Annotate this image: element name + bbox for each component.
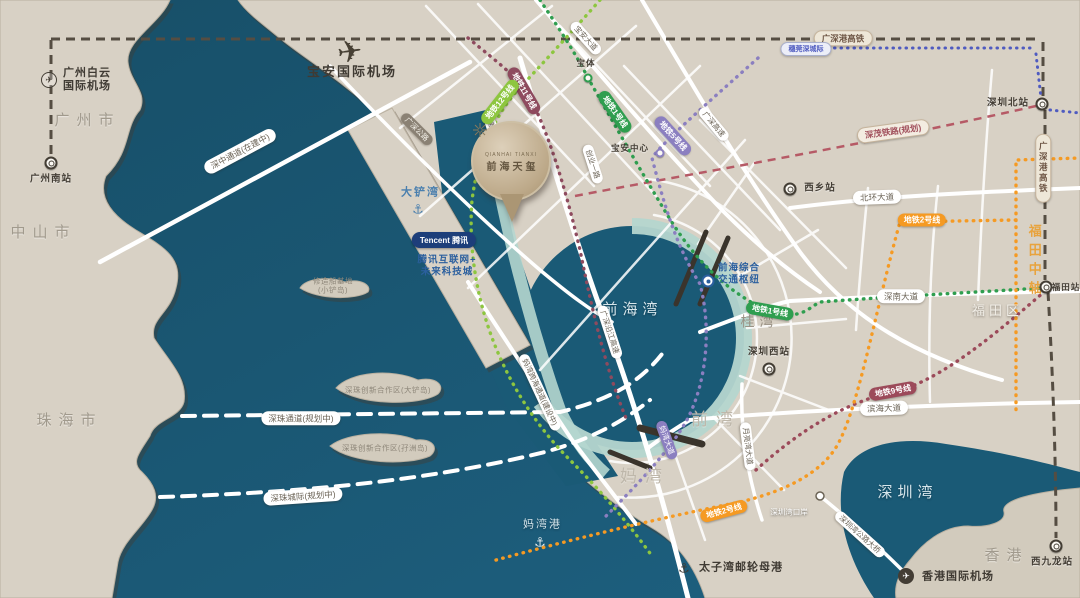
water-label-dachan-bay: 大铲湾 — [396, 186, 440, 199]
road-pill-shenzhu-corridor: 深珠通道(规划中) — [261, 411, 340, 425]
road-pill-beihuan-avenue: 北环大道 — [853, 189, 901, 204]
station-icon-xixiang — [784, 183, 797, 196]
region-label-guangzhou: 广州市 — [47, 112, 120, 130]
project-emblem-icon — [471, 121, 489, 139]
region-label-zhuhai: 珠海市 — [29, 412, 102, 430]
station-label-xixiang: 西乡站 — [804, 182, 836, 193]
baiyun-airport-label-line1: 广州白云 — [63, 67, 111, 80]
islet-label-line2: (小铲岛) — [313, 286, 353, 295]
shenzhen-bay-checkpoint-label: 深圳湾口岸 — [770, 508, 808, 517]
project-landmark-pin: QIANHAI TIANXI 前海天玺 — [471, 121, 553, 222]
region-label-hongkong: 香港 — [977, 547, 1028, 565]
road-pill-binhai-avenue: 滨海大道 — [860, 400, 908, 415]
station-icon-west-kowloon — [1050, 540, 1063, 553]
hk-airport-label: 香港国际机场 — [922, 570, 994, 583]
guangzhou-south-station-label: 广州南站 — [30, 173, 72, 184]
map-canvas: 广州市 中山市 珠海市 福田区 香港 桂湾 前湾 妈湾 福田中轴 前海湾 深圳湾… — [0, 0, 1080, 598]
water-label-shenzhen-bay: 深圳湾 — [872, 484, 937, 502]
project-pin-tail — [500, 194, 524, 222]
station-label-baoan-center: 宝安中心 — [611, 143, 649, 153]
guangzhou-south-station-icon — [45, 157, 58, 170]
area-label-mawan: 妈湾 — [612, 467, 670, 487]
region-label-futian: 福田区 — [965, 303, 1023, 319]
station-icon-shenzhen-north — [1036, 98, 1049, 111]
qianhai-hub-label-line2: 交通枢纽 — [718, 274, 760, 285]
station-label-baoti: 宝体 — [576, 58, 595, 68]
tencent-label-line1: 腾讯互联网+ — [417, 254, 476, 265]
station-label-west-kowloon: 西九龙站 — [1031, 556, 1073, 567]
station-label-shenzhen-north: 深圳北站 — [987, 97, 1029, 108]
taiziwan-anchor-icon: ⚓ — [678, 562, 690, 575]
qianhai-hub-icon — [702, 275, 715, 288]
project-pin-head: QIANHAI TIANXI 前海天玺 — [471, 121, 551, 201]
project-name-cn: 前海天玺 — [484, 158, 539, 173]
baiyun-airport-icon: ✈ — [41, 72, 57, 88]
station-icon-futian — [1040, 281, 1053, 294]
island-a-label: 深珠创新合作区(大铲岛) — [345, 385, 431, 394]
tencent-label-line2: 未来科技城 — [421, 266, 474, 277]
water-label-mawan-port: 妈湾港 — [518, 518, 562, 531]
tencent-badge: Tencent 腾讯 — [412, 232, 476, 248]
baiyun-airport-label-line2: 国际机场 — [63, 80, 111, 93]
taiziwan-port-label: 太子湾邮轮母港 — [699, 561, 783, 574]
station-icon-baoti — [584, 74, 593, 83]
rail-pill-suiwanshen-intercity: 穗莞深城际 — [781, 42, 832, 56]
station-icon-shenzhen-west — [763, 363, 776, 376]
shenzhen-bay-checkpoint-node — [816, 492, 824, 500]
mawan-port-anchor-icon: ⚓ — [534, 536, 546, 549]
metro-pill-line2-east: 地铁2号线 — [898, 214, 946, 227]
islet-label-line1: 修造船基地 — [313, 277, 353, 286]
hk-airport-icon: ✈ — [898, 568, 914, 584]
area-label-qianwan: 前湾 — [683, 410, 741, 430]
region-label-zhongshan: 中山市 — [3, 224, 76, 242]
road-pill-shennan-avenue: 深南大道 — [877, 289, 925, 303]
station-label-futian: 福田站 — [1052, 282, 1080, 292]
station-label-shenzhen-west: 深圳西站 — [748, 346, 790, 357]
baoan-airport-label: 宝安国际机场 — [307, 64, 397, 80]
qianhai-hub-label-line1: 前海综合 — [718, 262, 760, 273]
station-icon-baoan-center — [656, 149, 665, 158]
dachan-bay-anchor-icon: ⚓ — [412, 203, 424, 216]
island-b-label: 深珠创新合作区(孖洲岛) — [342, 443, 428, 452]
rail-pill-gshk-hsr-vertical: 广深港高铁 — [1035, 134, 1051, 203]
